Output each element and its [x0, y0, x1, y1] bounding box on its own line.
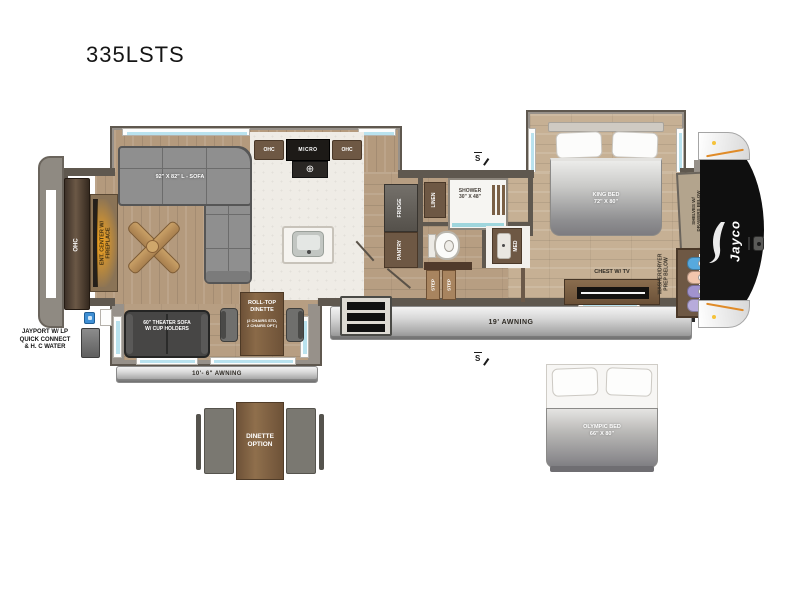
window: [210, 357, 296, 365]
chair-back: [298, 311, 303, 339]
pantry-label: PANTRY: [398, 240, 404, 260]
window: [136, 357, 198, 365]
dinette-option-rail: [319, 414, 324, 470]
med-cabinet-label: MED: [514, 240, 520, 251]
olympic-bed-base: [550, 466, 654, 472]
rear-ohc-label: OHC: [74, 238, 81, 251]
pillow: [612, 131, 659, 159]
entry-steps: [340, 296, 392, 336]
shower-shelf: [492, 185, 495, 215]
cooktop-icon: ⊕: [292, 161, 328, 178]
dinette-option-table: DINETTE OPTION: [236, 402, 284, 480]
dinette-chair: [286, 308, 304, 342]
pillow: [606, 367, 653, 397]
rear-cap: [38, 156, 64, 328]
ceiling-fan-hub-icon: [146, 240, 159, 253]
marker-light-icon: [712, 141, 716, 145]
step-tread: [347, 324, 385, 332]
hitch-pin-icon: [753, 236, 764, 251]
fridge-label: FRIDGE: [398, 199, 404, 218]
main-awning-label: 19' AWNING: [489, 319, 534, 328]
shower: [448, 178, 508, 230]
window-glass: [214, 360, 293, 363]
faucet-icon: [307, 250, 311, 254]
pillow: [552, 367, 599, 397]
sofa-seam: [206, 248, 250, 249]
jayport-label: JAYPORT W/ LP QUICK CONNECT & H. C WATER: [8, 329, 82, 352]
entertainment-center-label: ENT. CENTER W/ FIREPLACE: [100, 200, 113, 286]
solar-prep-icon: S: [474, 348, 488, 363]
small-awning-label: 10'- 6" AWNING: [192, 371, 242, 379]
window-glass: [116, 321, 120, 354]
grill-icon: [81, 328, 100, 358]
sofa-seam: [206, 214, 250, 215]
hitch-line: [748, 237, 750, 250]
tv-screen: [577, 287, 649, 299]
olympic-bed-comforter: [546, 408, 658, 468]
king-bed-headboard: [548, 122, 664, 132]
rear-window-band: [46, 190, 56, 298]
shower-shelf: [502, 185, 505, 215]
pillow: [556, 131, 603, 159]
dinette-option-label: DINETTE OPTION: [246, 433, 274, 449]
chest-tv-label: CHEST W/ TV: [566, 269, 658, 276]
toilet-bowl: [444, 240, 454, 252]
step-landing: [424, 262, 472, 270]
sofa-seam: [120, 168, 250, 169]
linen-label: LINEN: [432, 193, 438, 208]
step-tread: [347, 302, 385, 310]
solar-prep-letter: S: [474, 352, 482, 363]
shower-label: SHOWER 30" X 48": [449, 188, 491, 201]
rolltop-dinette-label: ROLL-TOP DINETTE: [241, 300, 283, 314]
step-tread: [347, 313, 385, 321]
sofa-label: 92" X 82" L - SOFA: [124, 174, 236, 181]
kitchen-ohc-left: OHC: [254, 140, 284, 160]
tv-screen-line: [581, 292, 645, 294]
shower-shelf: [497, 185, 500, 215]
toilet-icon: [434, 231, 460, 260]
sofa-end-cap: [206, 271, 250, 282]
window-glass: [362, 132, 394, 135]
washer-dryer-label: WASHER/DRYER PREP BELOW: [658, 241, 670, 307]
microwave-label: MICRO: [298, 147, 317, 153]
solar-prep-slash: [483, 158, 489, 165]
theater-sofa-label: 60" THEATER SOFA W/ CUP HOLDERS: [125, 320, 209, 333]
sink-basin: [297, 235, 320, 250]
theater-sofa: [124, 310, 210, 358]
microwave: MICRO: [286, 139, 330, 161]
olympic-bed-label: OLYMPIC BED 66" X 80": [548, 424, 656, 438]
window: [100, 309, 112, 326]
dinette-chair: [220, 308, 238, 342]
hitch-pin-center: [757, 242, 761, 246]
window-glass: [531, 133, 534, 171]
dinette-option-bench: [204, 408, 234, 474]
kitchen-ohc-right: OHC: [332, 140, 362, 160]
page-title: 335LSTS: [86, 42, 185, 68]
wall: [62, 168, 115, 176]
chest-with-tv: [564, 279, 660, 305]
window-glass: [127, 132, 247, 135]
window: [528, 128, 536, 174]
faucet-icon: [502, 244, 505, 247]
solar-prep-letter: S: [474, 152, 482, 163]
dinette-option-bench: [286, 408, 316, 474]
rolltop-dinette-note: (2 CHAIRS STD, 2 CHAIRS OPT.): [240, 318, 284, 328]
marker-light-icon: [712, 315, 716, 319]
kitchen-ohc-right-label: OHC: [341, 147, 352, 153]
window: [122, 128, 250, 136]
chair-back: [221, 311, 226, 339]
floorplan-canvas: 335LSTS 19' AWNING 10'- 6" AWNING: [0, 0, 800, 600]
step-label: STEP: [446, 279, 451, 291]
step-label: STEP: [430, 279, 435, 291]
jayco-bird-icon: [706, 220, 726, 266]
jayport-connector-icon: [84, 312, 95, 324]
king-bed-label: KING BED 72" X 80": [560, 192, 652, 206]
brand-logo: Jayco: [729, 220, 744, 262]
solar-prep-slash: [483, 358, 489, 365]
jayport-dot: [88, 316, 92, 320]
kitchen-sink-icon: [292, 231, 324, 257]
kitchen-ohc-left-label: OHC: [263, 147, 274, 153]
window-glass: [140, 360, 195, 363]
window: [113, 316, 122, 358]
window-glass: [679, 133, 682, 171]
dinette-option-rail: [196, 414, 201, 470]
small-awning-bar: 10'- 6" AWNING: [116, 366, 318, 383]
solar-prep-icon: S: [474, 148, 488, 163]
